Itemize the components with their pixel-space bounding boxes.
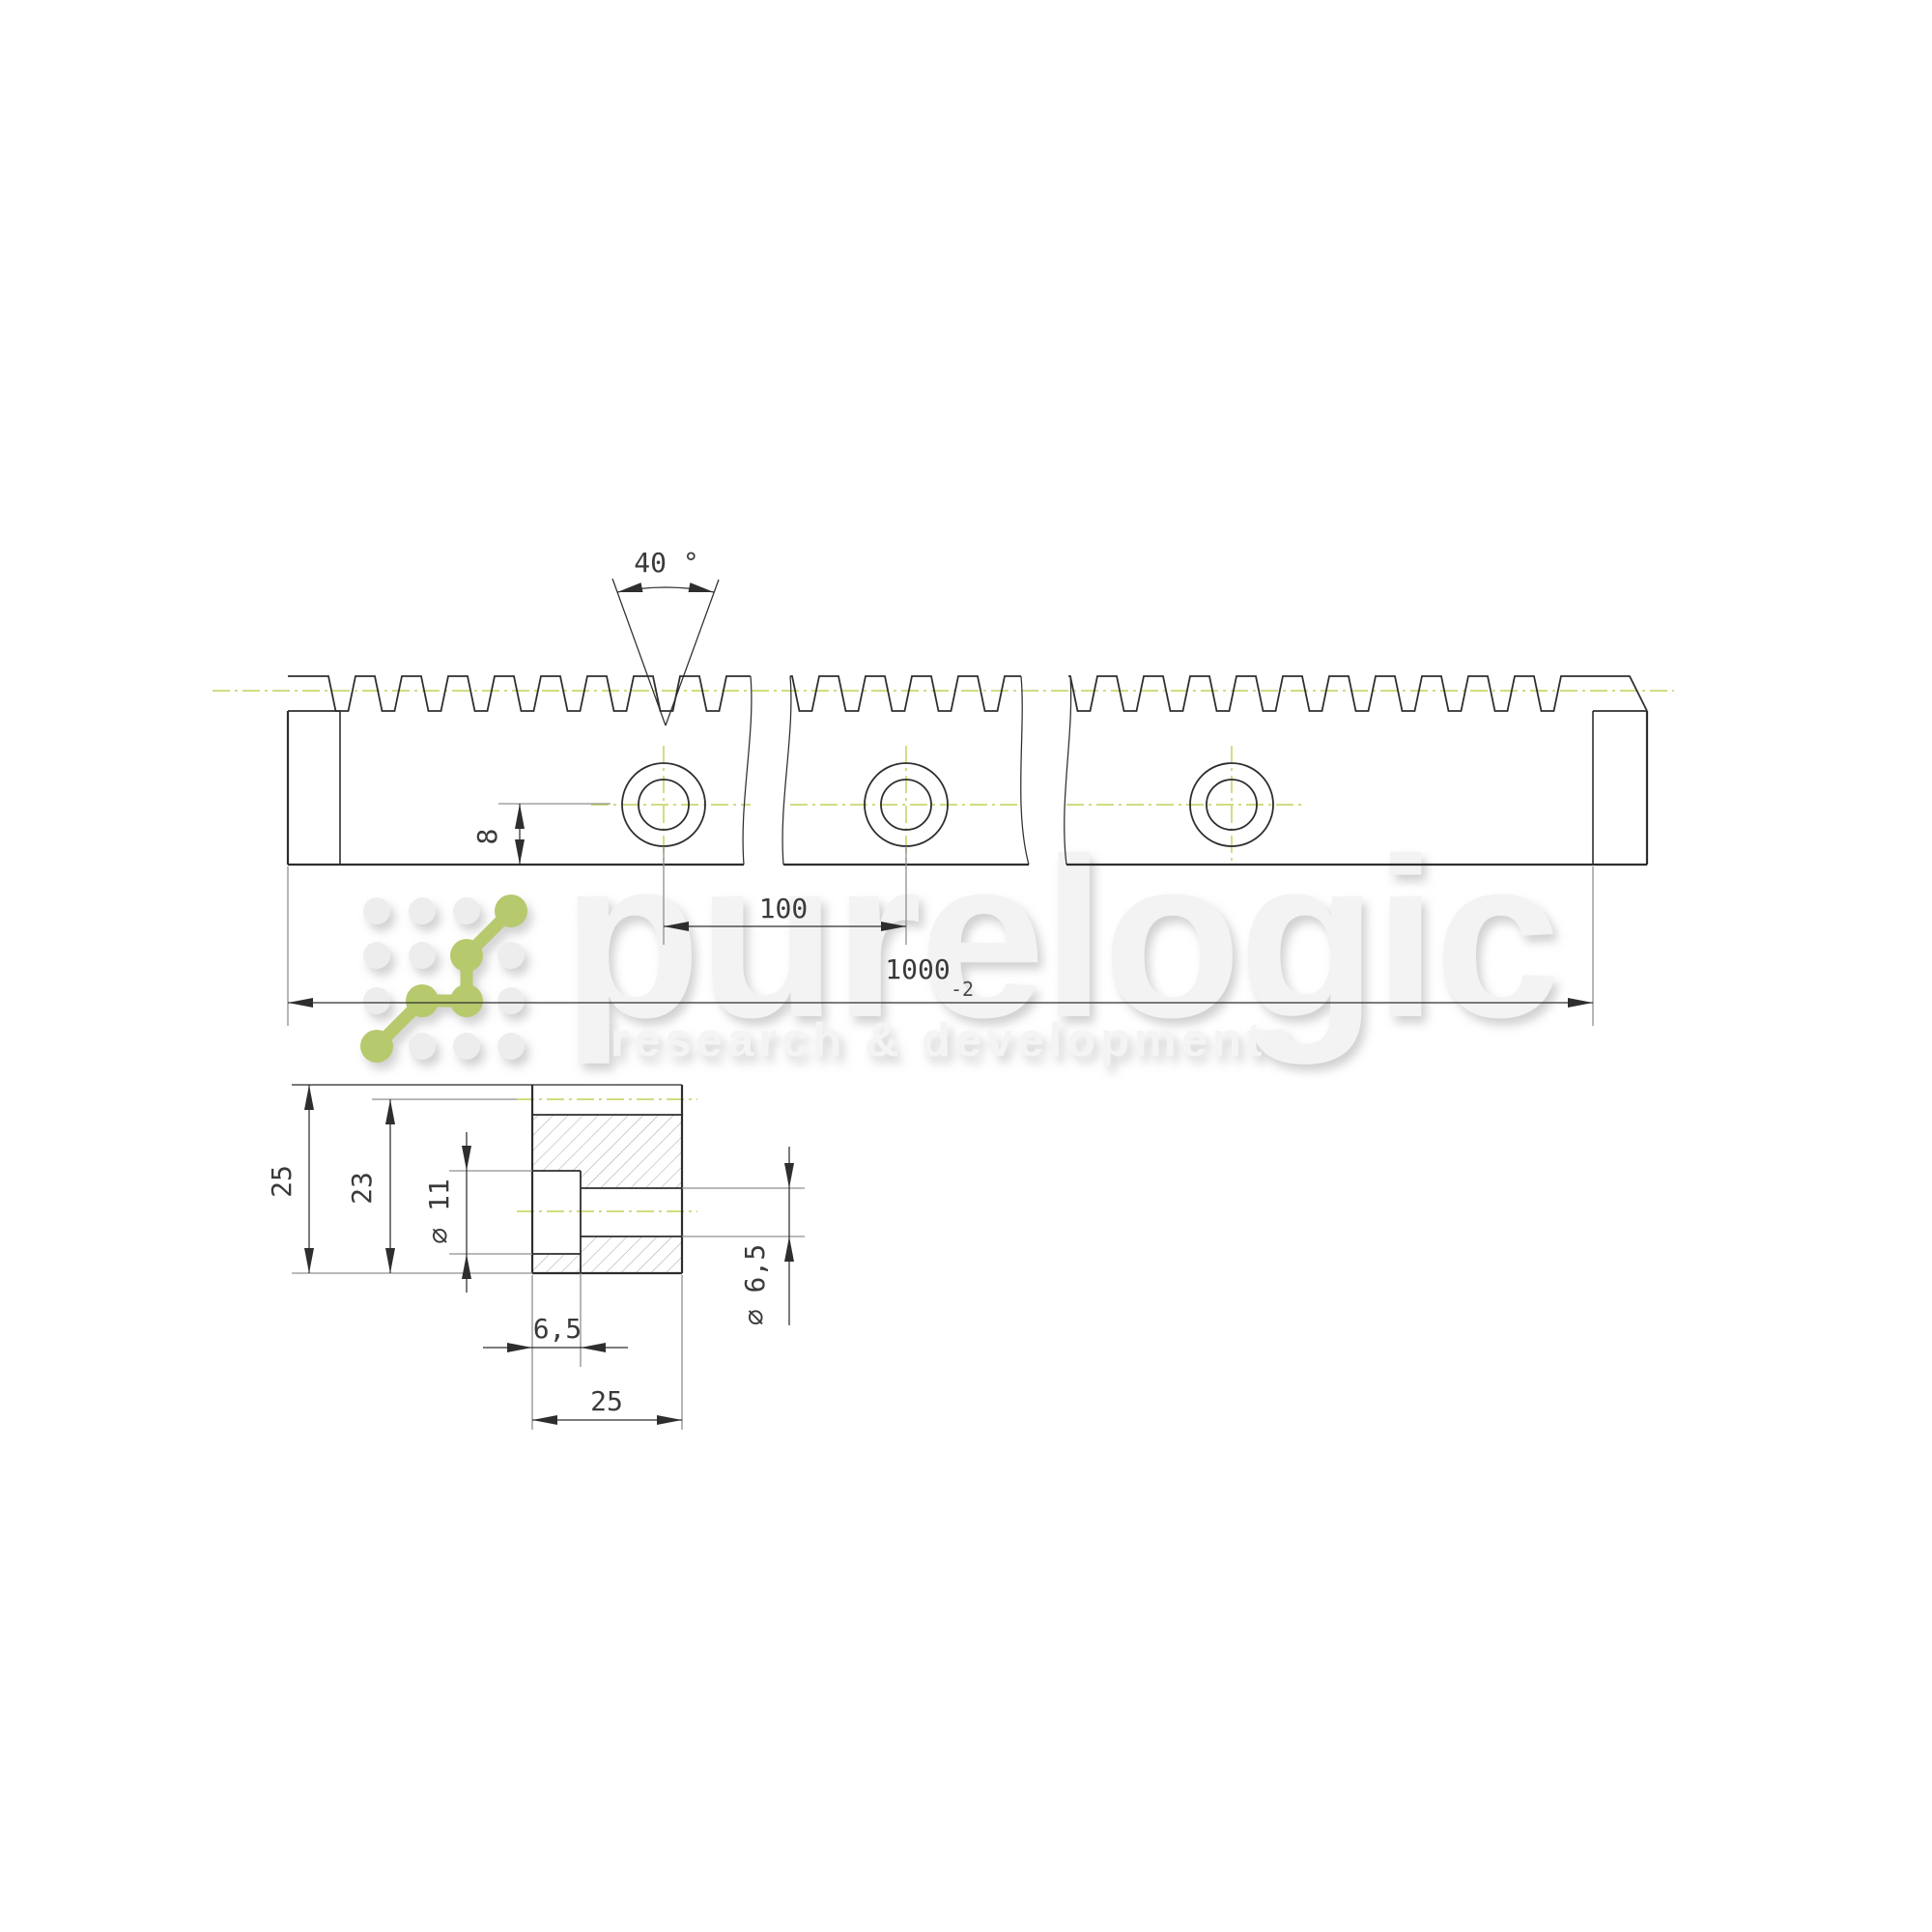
drawing-canvas: purelogic research & development <box>0 0 1932 1932</box>
dim-label-section-height: 25 <box>266 1165 298 1198</box>
dim-label-counterbore-diameter: ⌀ 11 <box>423 1179 455 1243</box>
dim-label-hole-offset: 8 <box>471 829 503 845</box>
engineering-drawing: purelogic research & development <box>0 0 1932 1932</box>
watermark-tagline: research & development <box>611 1014 1266 1066</box>
dim-label-section-width: 25 <box>590 1385 623 1417</box>
dim-label-counterbore-depth: 6,5 <box>533 1313 582 1345</box>
dim-label-hole-spacing: 100 <box>759 893 809 924</box>
dim-label-tooth-angle: 40 ° <box>634 547 698 579</box>
dim-label-total-length-tolerance: -2 <box>951 978 974 1001</box>
dim-label-total-length: 1000 <box>885 953 950 985</box>
dim-label-through-hole-diameter: ⌀ 6,5 <box>739 1244 771 1325</box>
dim-label-tooth-base-height: 23 <box>346 1172 378 1205</box>
